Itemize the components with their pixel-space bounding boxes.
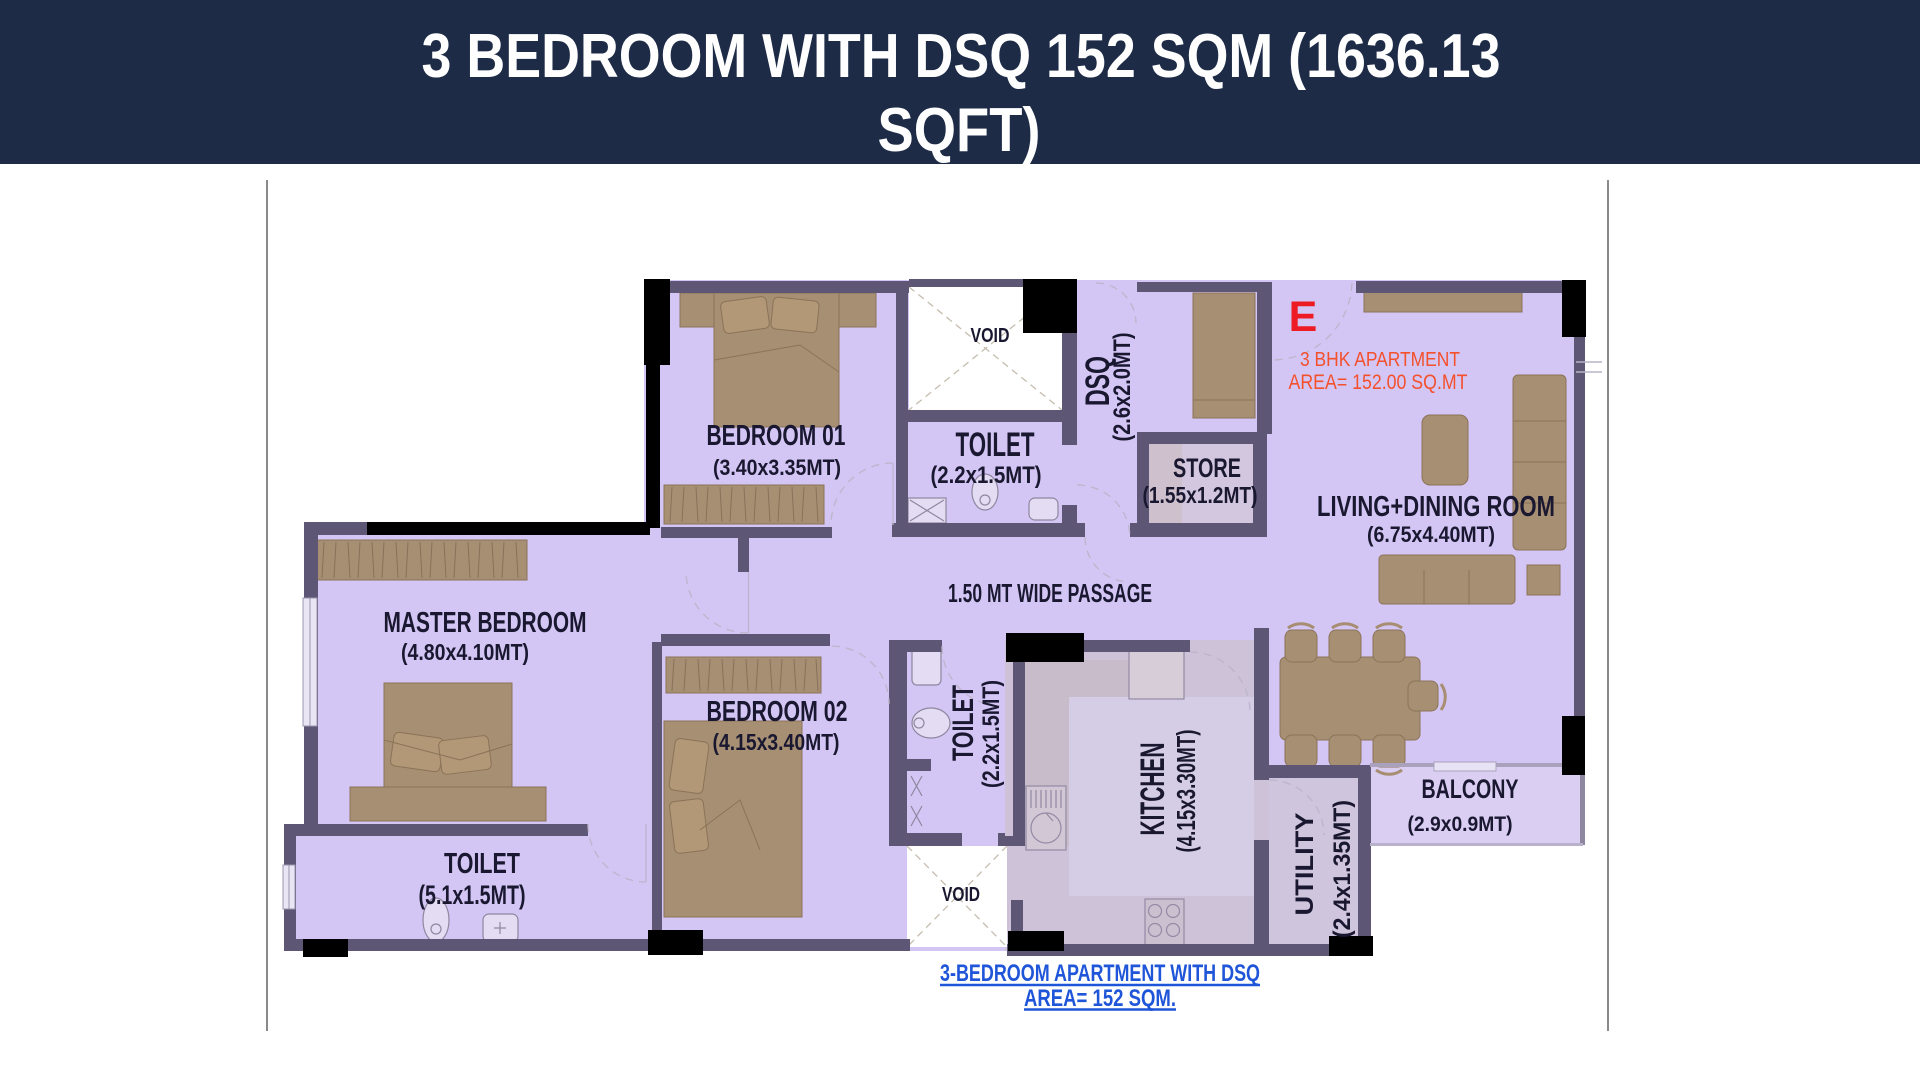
svg-text:(3.40x3.35MT): (3.40x3.35MT) — [713, 455, 841, 480]
svg-text:VOID: VOID — [971, 325, 1010, 347]
svg-text:(4.15x3.40MT): (4.15x3.40MT) — [713, 729, 840, 755]
svg-text:3 BHK APARTMENT: 3 BHK APARTMENT — [1300, 349, 1460, 371]
svg-text:E: E — [1289, 293, 1318, 341]
svg-text:TOILET: TOILET — [444, 848, 520, 880]
svg-text:(2.9x0.9MT): (2.9x0.9MT) — [1408, 813, 1513, 836]
svg-text:AREA= 152 SQM.: AREA= 152 SQM. — [1024, 985, 1176, 1012]
svg-text:AREA= 152.00 SQ.MT: AREA= 152.00 SQ.MT — [1289, 371, 1468, 394]
svg-text:SQFT): SQFT) — [878, 96, 1041, 165]
svg-text:(6.75x4.40MT): (6.75x4.40MT) — [1367, 522, 1495, 547]
svg-text:1.50 MT WIDE PASSAGE: 1.50 MT WIDE PASSAGE — [948, 578, 1152, 608]
svg-text:(4.80x4.10MT): (4.80x4.10MT) — [401, 639, 529, 665]
svg-text:MASTER BEDROOM: MASTER BEDROOM — [384, 607, 587, 639]
svg-text:3-BEDROOM APARTMENT WITH DSQ: 3-BEDROOM APARTMENT WITH DSQ — [940, 960, 1260, 987]
svg-text:TOILET: TOILET — [947, 685, 980, 761]
svg-text:(4.15x3.30MT): (4.15x3.30MT) — [1171, 730, 1201, 853]
svg-text:VOID: VOID — [942, 884, 980, 906]
svg-text:BEDROOM 01: BEDROOM 01 — [707, 420, 846, 452]
svg-text:(2.4x1.35MT): (2.4x1.35MT) — [1329, 800, 1356, 938]
svg-text:3 BEDROOM WITH DSQ 152 SQM (16: 3 BEDROOM WITH DSQ 152 SQM (1636.13 — [422, 22, 1501, 91]
svg-text:KITCHEN: KITCHEN — [1134, 743, 1172, 836]
svg-text:BEDROOM 02: BEDROOM 02 — [707, 696, 848, 728]
svg-text:UTILITY: UTILITY — [1291, 812, 1319, 915]
svg-text:TOILET: TOILET — [956, 426, 1035, 464]
svg-text:(2.2x1.5MT): (2.2x1.5MT) — [978, 680, 1005, 788]
svg-text:(1.55x1.2MT): (1.55x1.2MT) — [1143, 482, 1258, 508]
svg-text:STORE: STORE — [1173, 453, 1241, 483]
svg-text:BALCONY: BALCONY — [1422, 774, 1519, 804]
svg-text:(5.1x1.5MT): (5.1x1.5MT) — [419, 880, 526, 910]
svg-text:(2.2x1.5MT): (2.2x1.5MT) — [931, 462, 1042, 489]
svg-text:LIVING+DINING ROOM: LIVING+DINING ROOM — [1317, 491, 1555, 523]
svg-text:(2.6x2.0MT): (2.6x2.0MT) — [1109, 333, 1136, 442]
